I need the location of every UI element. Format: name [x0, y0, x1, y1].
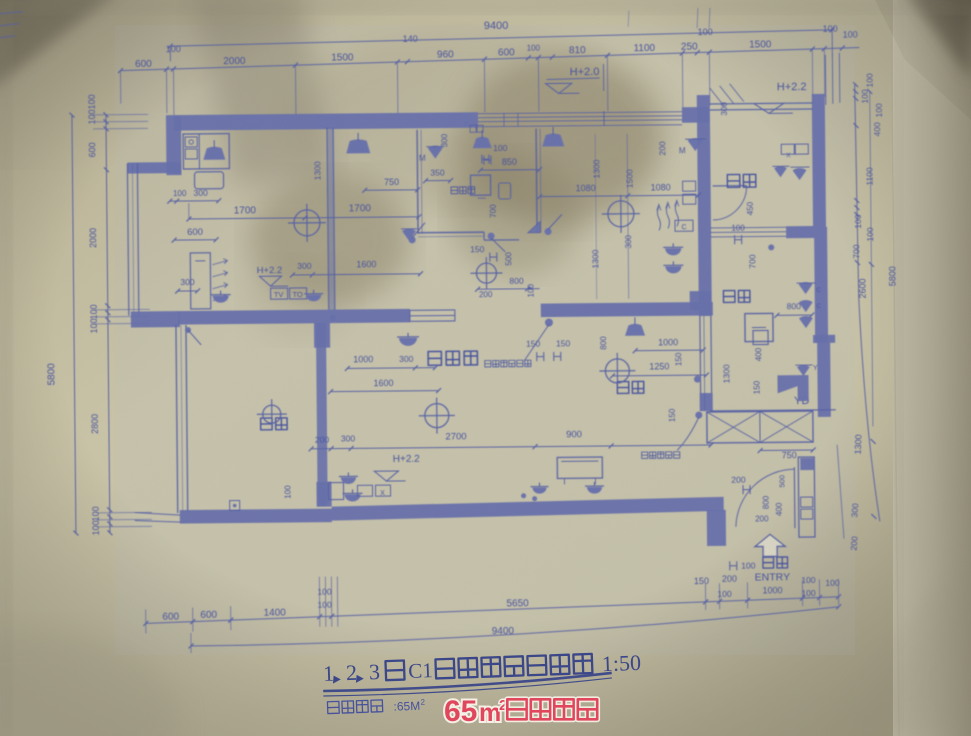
svg-text:3: 3 [369, 659, 381, 684]
svg-text:65: 65 [444, 695, 477, 728]
svg-text:m: m [479, 699, 501, 727]
svg-text:C1: C1 [408, 658, 433, 683]
svg-text:2: 2 [346, 660, 358, 685]
svg-text:1: 1 [323, 661, 335, 686]
svg-text::65M: :65M [393, 699, 420, 714]
